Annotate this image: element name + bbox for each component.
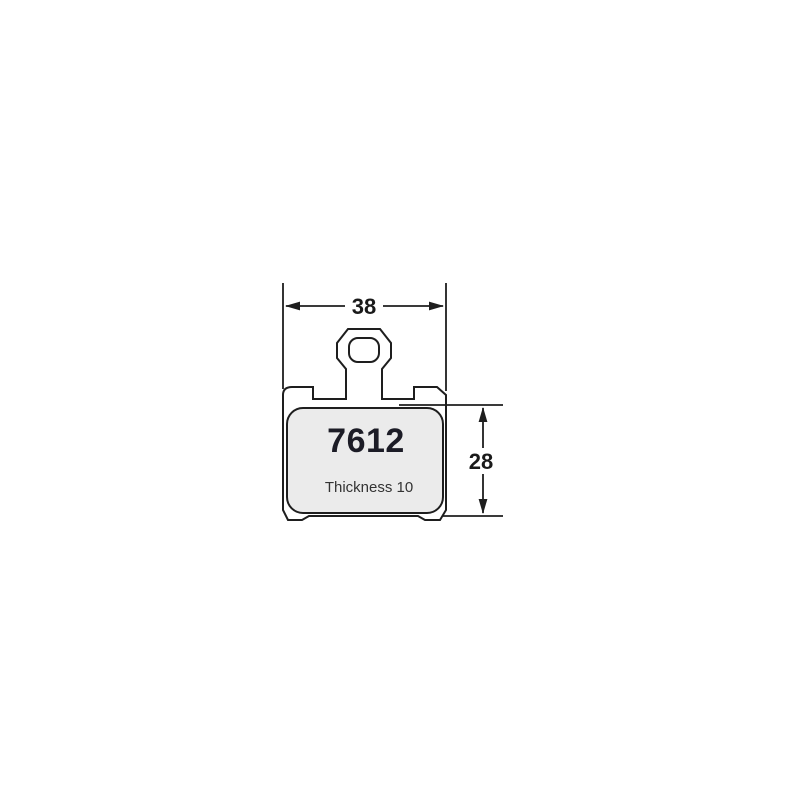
thickness-label: Thickness 10 [325,479,413,496]
height-arrow-up [479,407,488,422]
height-arrow-down [479,499,488,514]
width-arrow-left [285,302,300,311]
width-dimension-label: 38 [352,294,376,319]
part-number-label: 7612 [327,422,405,460]
tab-hole [349,338,379,362]
width-arrow-right [429,302,444,311]
brake-pad-technical-diagram: 7612 Thickness 10 38 28 [0,0,800,800]
height-dimension-label: 28 [469,449,493,474]
brake-pad-drawing-canvas: 7612 Thickness 10 38 28 [0,0,800,800]
